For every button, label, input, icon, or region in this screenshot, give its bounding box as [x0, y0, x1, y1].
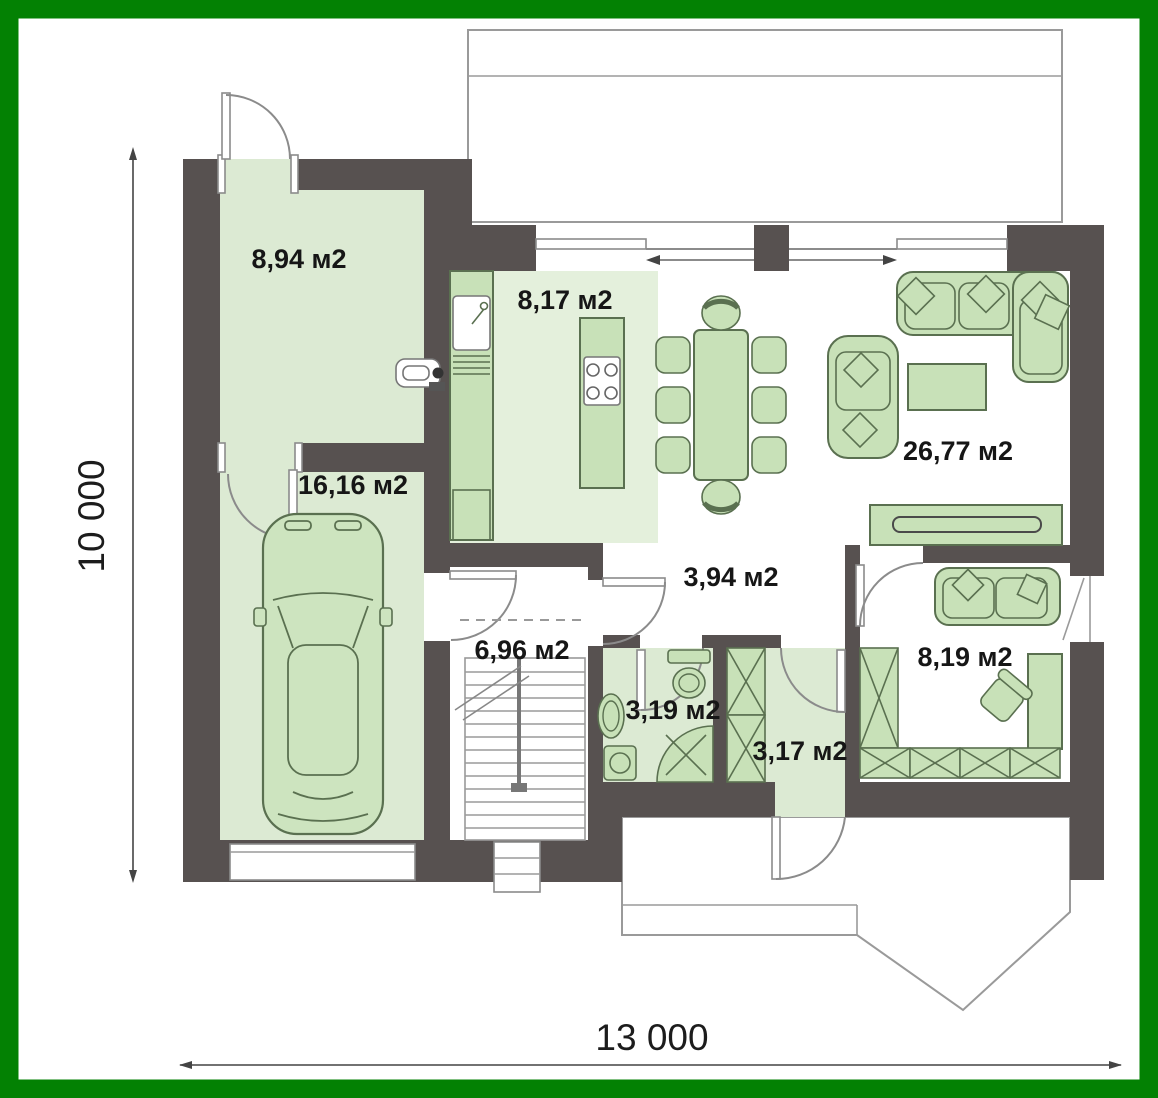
room-area-label-vestibule: 3,17 м2 [752, 736, 847, 766]
stove-icon [584, 357, 620, 405]
room-area-label-hallway: 3,94 м2 [683, 562, 778, 592]
kitchen-sink-icon [453, 296, 490, 350]
washer-icon [604, 746, 636, 780]
dining-chair [752, 437, 786, 473]
office-bay-window [1063, 576, 1106, 642]
floor-plan-drawing: 8,94 м2 8,17 м2 16,16 м2 26,77 м2 3,94 м… [0, 0, 1158, 1098]
dining-chair [752, 337, 786, 373]
garage-gate [230, 844, 415, 880]
coffee-table [908, 364, 986, 410]
dining-chair [752, 387, 786, 423]
armchair [828, 336, 898, 458]
entry-room-floor [220, 190, 424, 443]
sink-icon [598, 694, 624, 738]
room-area-label-living: 26,77 м2 [903, 436, 1013, 466]
room-area-label-kitchen: 8,17 м2 [517, 285, 612, 315]
dimension-width-label: 13 000 [595, 1017, 708, 1058]
sideboard [870, 505, 1062, 545]
office-loveseat [935, 568, 1060, 625]
room-area-label-office: 8,19 м2 [917, 642, 1012, 672]
room-area-label-entry-room: 8,94 м2 [251, 244, 346, 274]
floor-plan-page: 8,94 м2 8,17 м2 16,16 м2 26,77 м2 3,94 м… [0, 0, 1158, 1098]
stair-window [494, 842, 540, 892]
door-latch-icon [396, 359, 445, 391]
room-area-label-stair-hall: 6,96 м2 [474, 635, 569, 665]
room-area-label-garage: 16,16 м2 [298, 470, 408, 500]
dimension-height-label: 10 000 [71, 459, 112, 572]
dining-table [694, 330, 748, 480]
terrace [468, 30, 1062, 222]
office-desk [1028, 654, 1062, 749]
dining-chair [656, 437, 690, 473]
room-area-label-bathroom: 3,19 м2 [625, 695, 720, 725]
car-mirror [380, 608, 392, 626]
dining-chair [656, 337, 690, 373]
car-top-view [254, 514, 392, 834]
dining-chair [656, 387, 690, 423]
car-mirror [254, 608, 266, 626]
